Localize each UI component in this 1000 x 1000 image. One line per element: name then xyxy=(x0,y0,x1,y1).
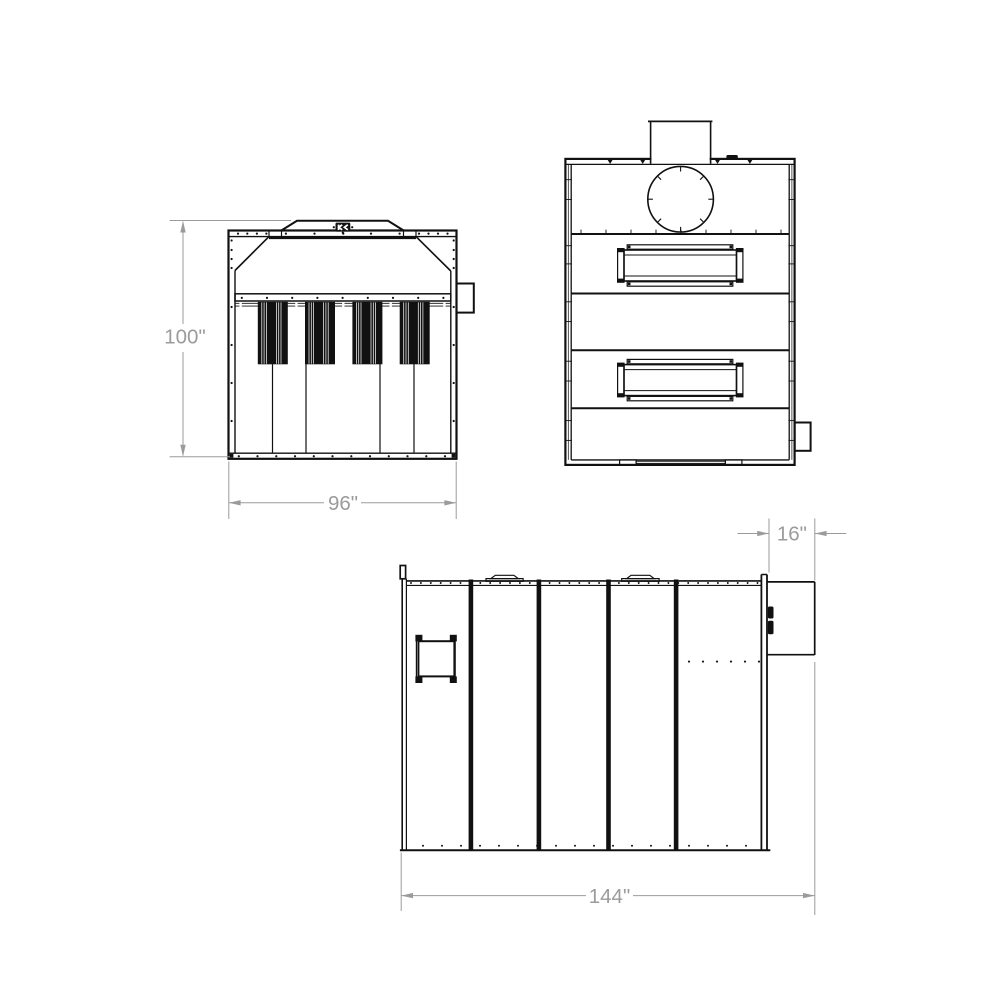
svg-text:96": 96" xyxy=(328,492,358,515)
svg-text:16": 16" xyxy=(777,523,807,546)
svg-text:100": 100" xyxy=(164,326,205,349)
svg-text:144": 144" xyxy=(589,885,630,908)
